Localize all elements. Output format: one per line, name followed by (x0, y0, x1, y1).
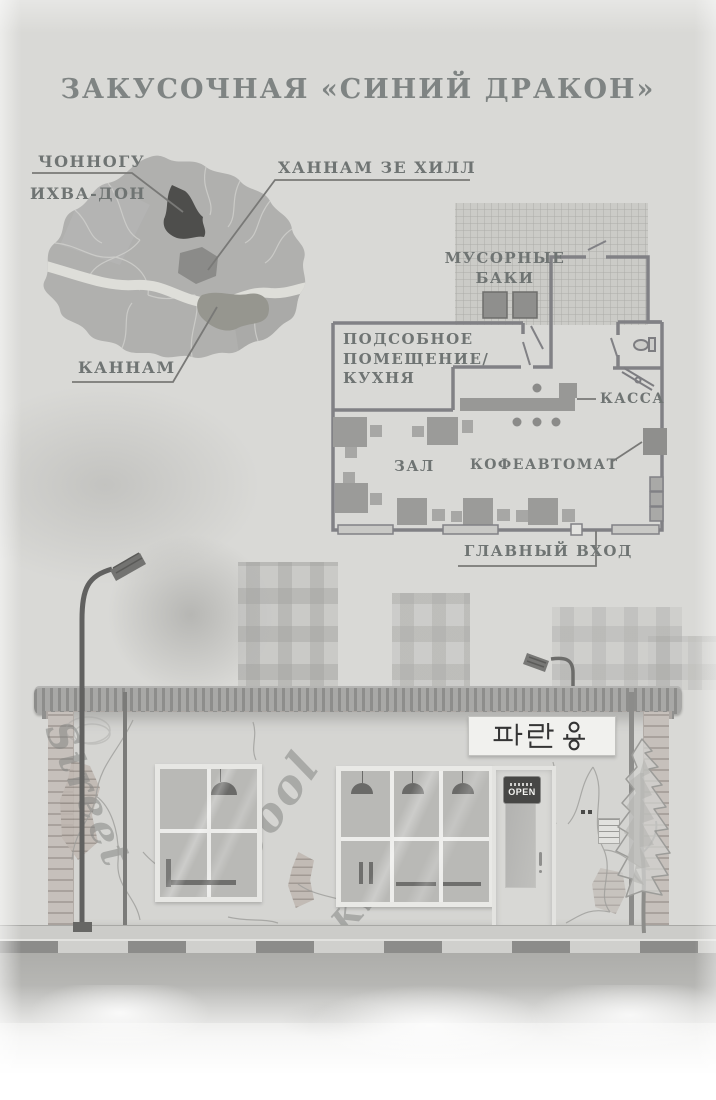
bottom-wash (0, 985, 716, 1100)
window-main (336, 766, 494, 907)
trash-bin (513, 292, 537, 318)
kitchen-line: ПОМЕЩЕНИЕ/ (343, 350, 489, 370)
plan-label-coffee: КОФЕАВТОМАТ (470, 457, 619, 473)
kitchen-line: ПОДСОБНОЕ (343, 330, 489, 350)
sign-korean-text (487, 721, 597, 751)
illustration-page: ЗАКУСОЧНАЯ «СИНИЙ ДРАКОН» (0, 0, 716, 1100)
map-label-jongno: ЧОННОГУ (38, 152, 145, 171)
plan-label-entrance: ГЛАВНЫЙ ВХОД (464, 542, 633, 560)
plan-label-kitchen: ПОДСОБНОЕ ПОМЕЩЕНИЕ/ КУХНЯ (343, 330, 489, 389)
tree (592, 733, 692, 935)
open-sign-smallprint (510, 783, 534, 786)
map-label-gangnam: КАННАМ (78, 358, 176, 377)
window-reflection (160, 769, 257, 897)
counter (559, 383, 577, 398)
kitchen-line: КУХНЯ (343, 369, 489, 389)
page-title: ЗАКУСОЧНАЯ «СИНИЙ ДРАКОН» (0, 74, 716, 105)
plan-entrance (571, 524, 582, 535)
coffee-machine (643, 428, 667, 455)
background-building (392, 593, 470, 690)
door-glass (505, 800, 536, 888)
open-sign: OPEN (503, 776, 541, 804)
plan-label-hall: ЗАЛ (394, 457, 435, 475)
background-building (238, 562, 338, 690)
plan-label-cashier: КАССА (600, 391, 665, 407)
window-left (155, 764, 262, 902)
background-building (648, 636, 716, 690)
open-sign-text: OPEN (508, 787, 536, 797)
map-label-hannam: ХАННАМ ЗЕ ХИЛЛ (278, 158, 476, 177)
trash-bin (483, 292, 507, 318)
entrance-door: OPEN (492, 766, 556, 933)
plan-label-trash: МУСОРНЫЕ БАКИ (440, 248, 570, 289)
sink-icon (622, 368, 654, 390)
window-reflection (341, 771, 489, 902)
shelf-boxes (650, 477, 663, 521)
streetlight-tall (66, 540, 161, 940)
map-label-ihwa: ИХВА-ДОН (30, 184, 146, 203)
door-handle (539, 852, 542, 866)
door-handle (539, 870, 542, 873)
toilet-icon (634, 338, 655, 351)
counter (460, 398, 575, 411)
